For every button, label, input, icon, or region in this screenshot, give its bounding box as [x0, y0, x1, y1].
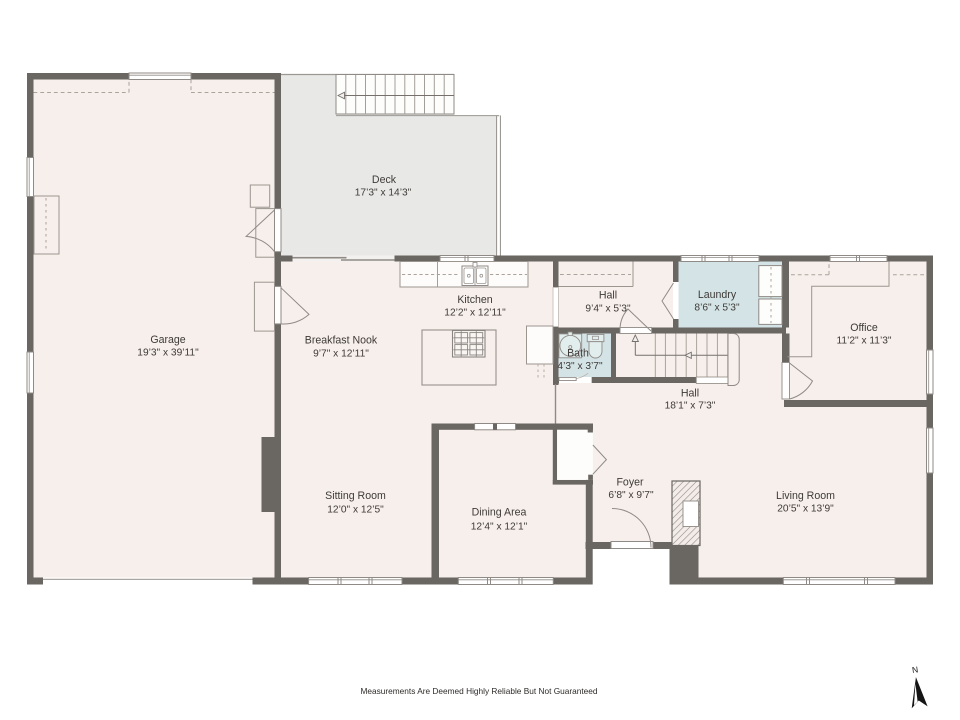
svg-text:Breakfast Nook: Breakfast Nook — [305, 334, 378, 346]
svg-text:19’3" x 39’11": 19’3" x 39’11" — [137, 348, 199, 359]
svg-text:Dining Area: Dining Area — [472, 507, 527, 519]
svg-text:Bath: Bath — [567, 348, 589, 360]
svg-text:Kitchen: Kitchen — [457, 294, 492, 306]
svg-text:Foyer: Foyer — [616, 477, 644, 489]
svg-text:Sitting Room: Sitting Room — [325, 490, 386, 502]
svg-text:4’3" x 3’7": 4’3" x 3’7" — [557, 361, 603, 372]
svg-text:20’5" x 13’9": 20’5" x 13’9" — [777, 504, 834, 515]
svg-text:Living Room: Living Room — [776, 490, 835, 502]
svg-text:11’2" x 11’3": 11’2" x 11’3" — [837, 335, 892, 346]
svg-text:12’2" x 12’11": 12’2" x 12’11" — [444, 308, 506, 319]
svg-text:12’4" x 12’1": 12’4" x 12’1" — [471, 522, 528, 533]
svg-text:N: N — [911, 664, 918, 675]
svg-text:Garage: Garage — [150, 334, 185, 346]
svg-text:12’0" x 12’5": 12’0" x 12’5" — [327, 505, 384, 516]
svg-text:17’3" x 14’3": 17’3" x 14’3" — [355, 187, 412, 198]
svg-text:Hall: Hall — [599, 290, 617, 302]
svg-text:18’1" x 7’3": 18’1" x 7’3" — [665, 401, 716, 412]
svg-text:6’8" x 9’7": 6’8" x 9’7" — [608, 490, 654, 501]
svg-text:Hall: Hall — [681, 388, 699, 400]
svg-text:Laundry: Laundry — [698, 289, 737, 301]
svg-text:8’6" x 5’3": 8’6" x 5’3" — [694, 302, 740, 313]
svg-text:9’7" x 12’11": 9’7" x 12’11" — [313, 349, 369, 360]
svg-text:9’4" x 5’3": 9’4" x 5’3" — [585, 304, 631, 315]
svg-text:Office: Office — [850, 322, 878, 334]
svg-text:Measurements Are Deemed Highly: Measurements Are Deemed Highly Reliable … — [360, 686, 597, 696]
svg-text:Deck: Deck — [372, 174, 397, 186]
